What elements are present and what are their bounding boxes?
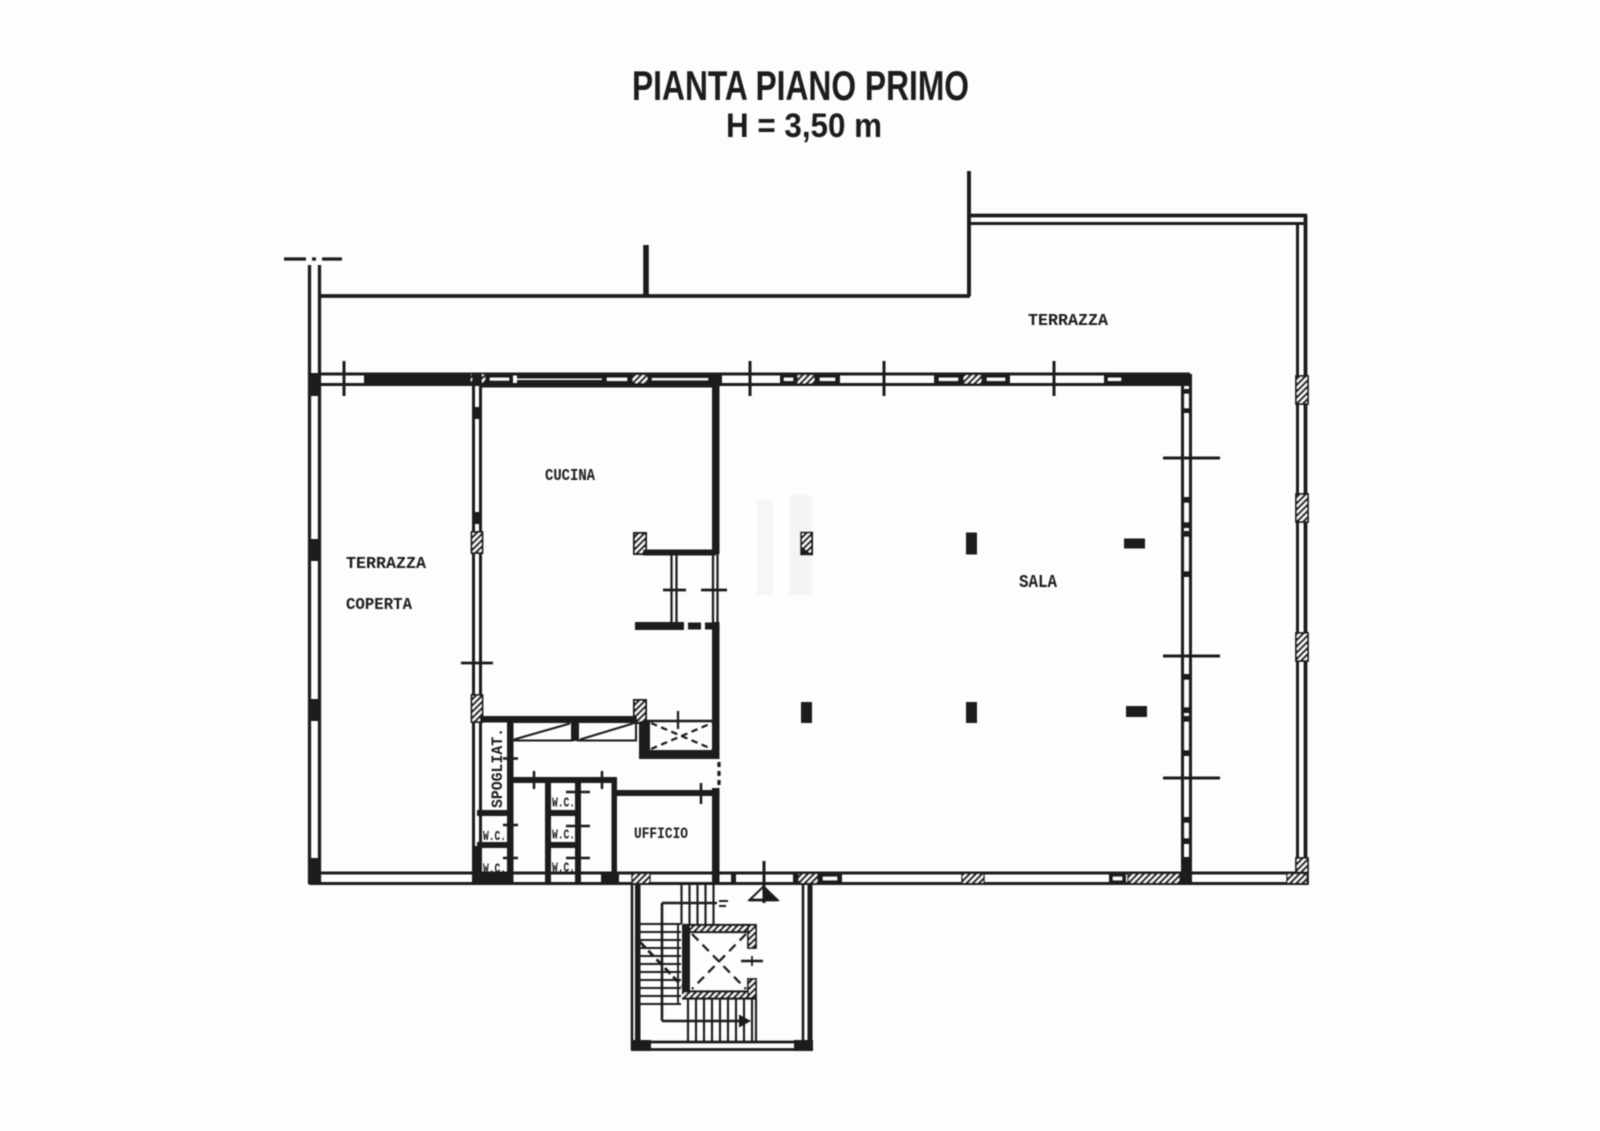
svg-text:UFFICIO: UFFICIO xyxy=(634,825,688,843)
svg-text:COPERTA: COPERTA xyxy=(346,595,412,614)
svg-text:W.C.: W.C. xyxy=(552,797,575,812)
svg-text:SALA: SALA xyxy=(1019,573,1057,593)
svg-text:SPOGLIAT.: SPOGLIAT. xyxy=(489,728,507,808)
svg-text:CUCINA: CUCINA xyxy=(545,467,596,486)
svg-text:TERRAZZA: TERRAZZA xyxy=(1028,311,1108,330)
svg-text:PIANTA PIANO PRIMO: PIANTA PIANO PRIMO xyxy=(632,62,969,109)
svg-text:W.C.: W.C. xyxy=(483,863,506,878)
svg-text:W.C.: W.C. xyxy=(552,829,575,844)
svg-text:TERRAZZA: TERRAZZA xyxy=(346,554,426,573)
svg-text:H = 3,50 m: H = 3,50 m xyxy=(726,107,882,145)
svg-text:W.C.: W.C. xyxy=(483,830,506,845)
svg-text:W.C.: W.C. xyxy=(552,862,575,877)
